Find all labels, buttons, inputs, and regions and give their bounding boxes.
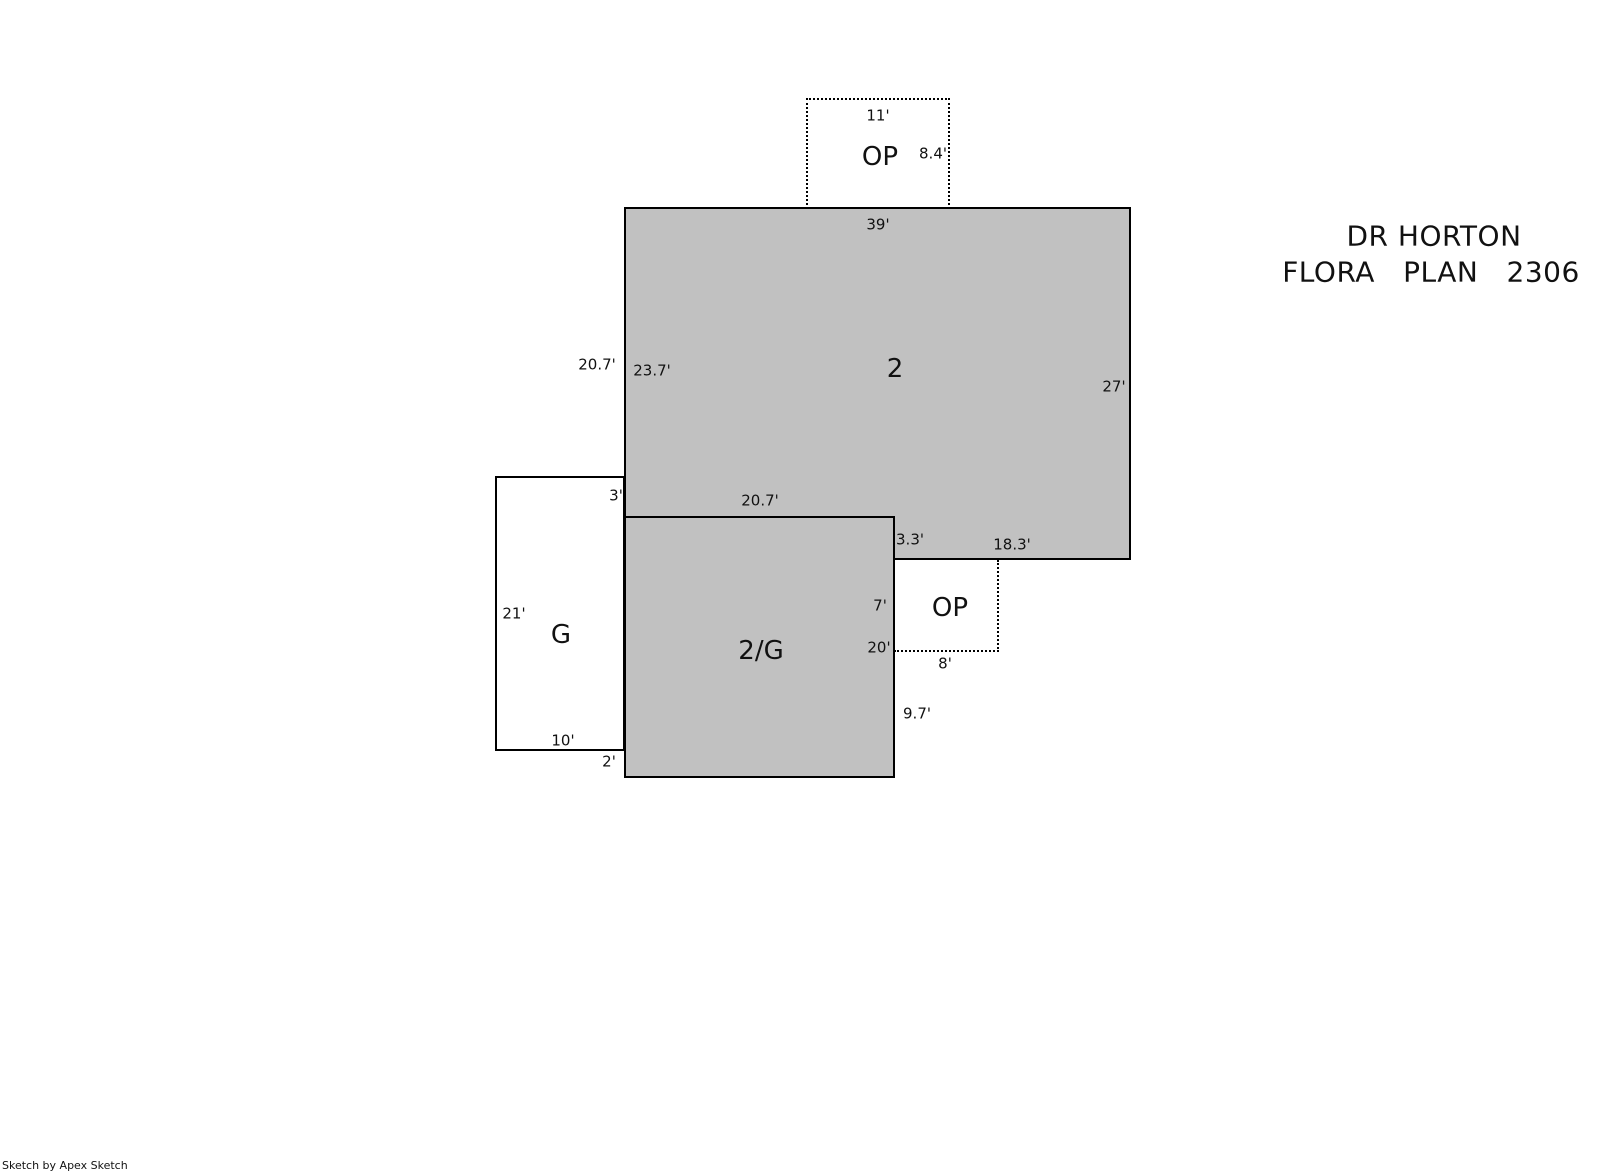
- dim-second-floor-bottom: 18.3': [993, 538, 1031, 553]
- dim-op-top-width: 11': [866, 109, 889, 124]
- dim-garage-top-offset: 3': [609, 489, 623, 504]
- open-porch-top-label: OP: [862, 144, 898, 170]
- dim-second-floor-left-interior: 23.7': [633, 364, 671, 379]
- dim-second-floor-garage-top: 20.7': [741, 494, 779, 509]
- second-floor-garage-label: 2/G: [738, 638, 783, 664]
- open-porch-side-label: OP: [932, 595, 968, 621]
- dim-op-top-height: 8.4': [919, 147, 947, 162]
- dim-garage-left: 21': [502, 607, 525, 622]
- dim-second-floor-garage-right-step: 3.3': [896, 533, 924, 548]
- garage-label: G: [551, 622, 571, 648]
- plan-title-line2: FLORA PLAN 2306: [1282, 256, 1580, 289]
- second-floor-outline: [624, 207, 1131, 560]
- dim-second-floor-top: 39': [866, 218, 889, 233]
- dim-second-floor-right: 27': [1102, 380, 1125, 395]
- floor-plan-sketch: 11' OP 8.4' 39' 20.7' 23.7' 2 27' 18.3' …: [0, 0, 1601, 1174]
- dim-op-side-width: 8': [938, 657, 952, 672]
- dim-second-floor-left-exterior: 20.7': [578, 358, 616, 373]
- plan-title-line1: DR HORTON: [1346, 220, 1521, 253]
- dim-second-floor-garage-right-lower: 9.7': [903, 707, 931, 722]
- dim-garage-bottom: 10': [551, 734, 574, 749]
- dim-garage-bottom-offset: 2': [602, 755, 616, 770]
- apex-sketch-watermark: Sketch by Apex Sketch: [2, 1160, 128, 1171]
- second-floor-label: 2: [887, 356, 904, 382]
- dim-second-floor-garage-right-mid: 20': [867, 641, 890, 656]
- dim-second-floor-garage-right-upper: 7': [873, 599, 887, 614]
